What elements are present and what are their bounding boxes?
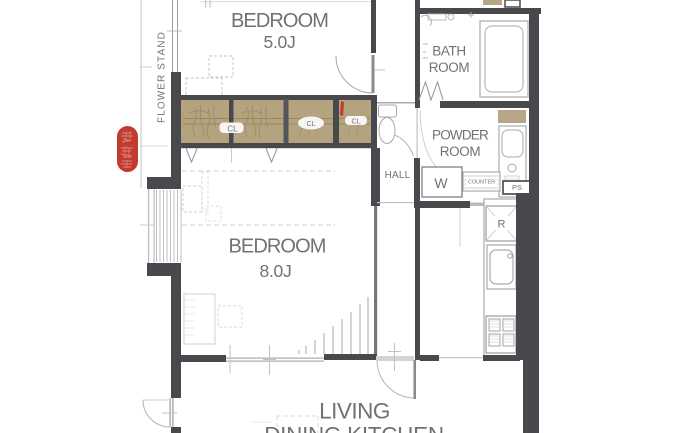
svg-text:ROOM: ROOM bbox=[440, 144, 481, 159]
svg-text:8.0J: 8.0J bbox=[260, 261, 292, 281]
svg-text:CL: CL bbox=[352, 119, 361, 126]
svg-text:CL: CL bbox=[227, 125, 238, 134]
svg-text:LIVING: LIVING bbox=[319, 399, 390, 424]
svg-text:BATH: BATH bbox=[432, 44, 465, 59]
svg-text:PS: PS bbox=[512, 183, 522, 192]
svg-text:POWDER: POWDER bbox=[432, 128, 489, 143]
svg-text:DINING KITCHEN: DINING KITCHEN bbox=[264, 423, 444, 433]
svg-text:W: W bbox=[434, 175, 448, 191]
svg-text:CL: CL bbox=[307, 121, 316, 128]
svg-text:COUNTER: COUNTER bbox=[468, 180, 495, 186]
svg-text:BEDROOM: BEDROOM bbox=[231, 10, 328, 32]
svg-text:BEDROOM: BEDROOM bbox=[228, 236, 325, 258]
svg-text:ROOM: ROOM bbox=[429, 60, 470, 75]
svg-text:FLOWER STAND: FLOWER STAND bbox=[157, 31, 168, 123]
svg-text:R: R bbox=[498, 219, 506, 231]
svg-text:5.0J: 5.0J bbox=[264, 32, 296, 52]
svg-text:HALL: HALL bbox=[385, 170, 411, 181]
